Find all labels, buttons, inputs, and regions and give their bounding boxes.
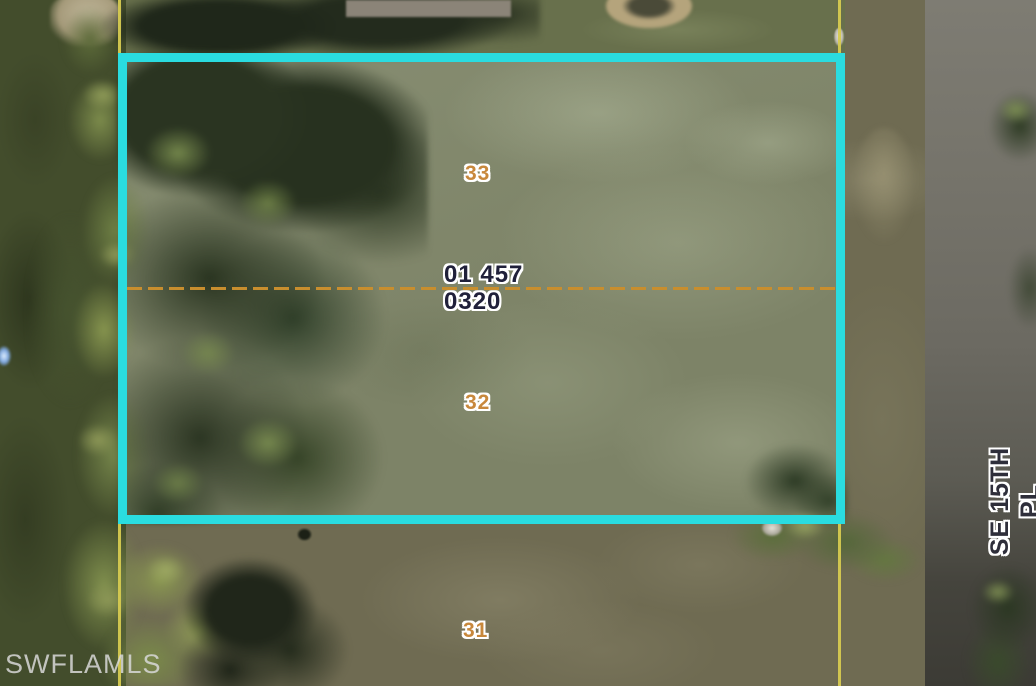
parcel-id-line2: 0320	[444, 288, 501, 316]
sandy-grass-patch	[852, 128, 916, 243]
mls-watermark: SWFLAMLS	[5, 649, 162, 680]
street-name-label: SE 15TH PL	[985, 426, 1015, 576]
roadside-trees-middle	[1000, 232, 1036, 344]
dark-speck	[297, 528, 312, 541]
parcel-id-line1: 01 457	[444, 261, 523, 289]
lot-number-31: 31	[463, 619, 488, 643]
building-roof	[346, 0, 511, 17]
lot-number-32: 32	[465, 391, 490, 415]
aerial-parcel-map: 33 32 31 01 457 0320 SE 15TH PL SWFLAMLS	[0, 0, 1036, 686]
bottom-tree-shadow	[138, 528, 373, 686]
roadside-trees-top	[976, 76, 1036, 176]
lot-number-33: 33	[465, 162, 490, 186]
